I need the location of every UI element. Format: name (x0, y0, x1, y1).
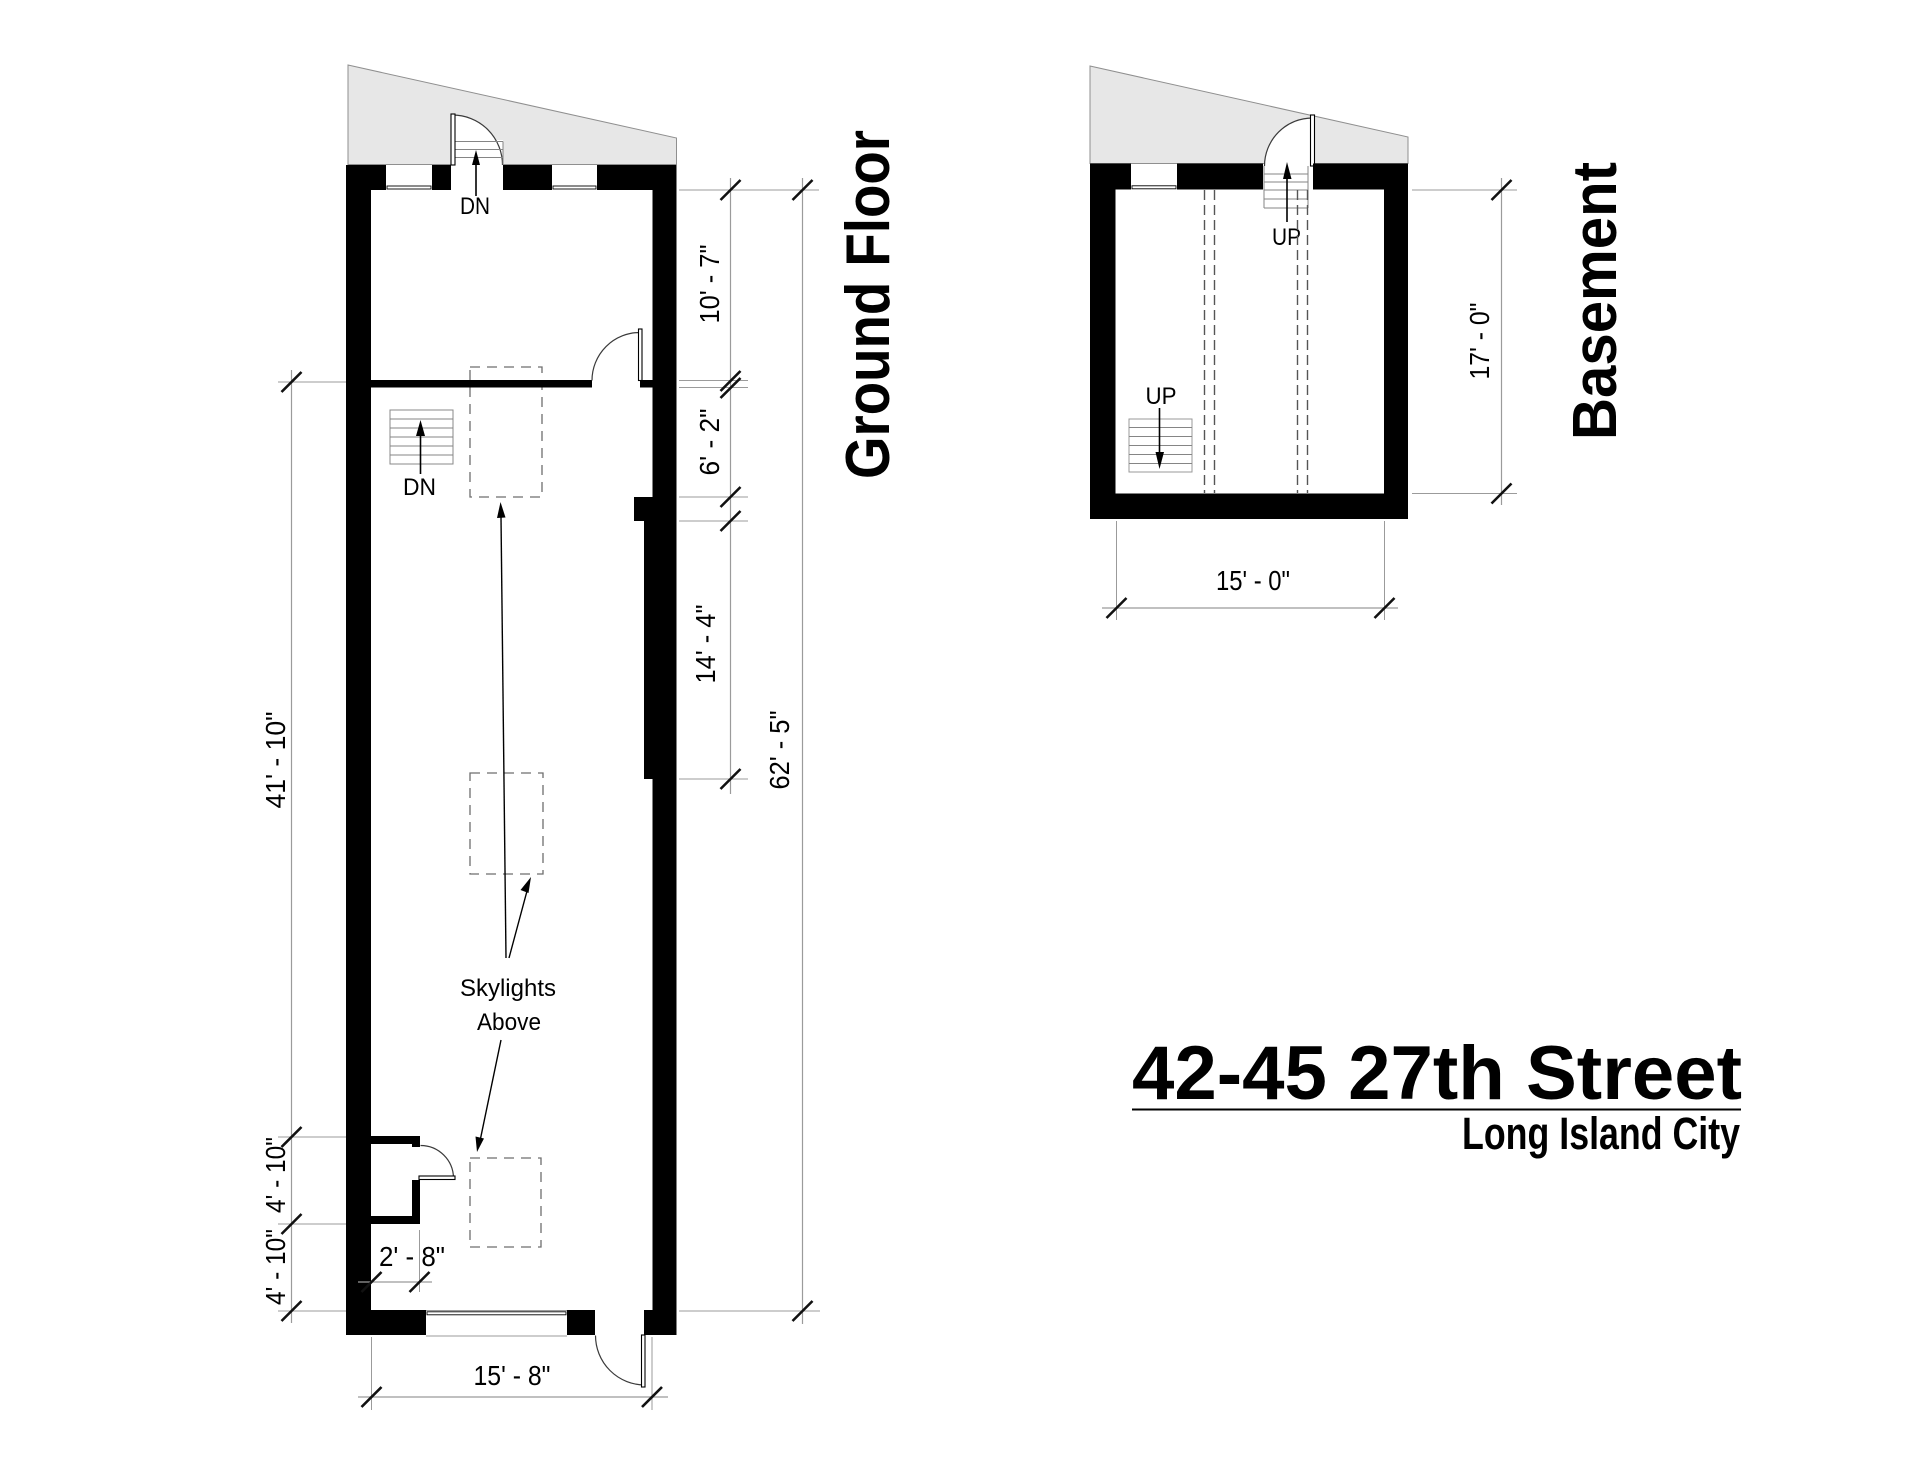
svg-text:14' - 4": 14' - 4" (690, 605, 721, 684)
svg-text:2' - 8": 2' - 8" (379, 1241, 445, 1272)
svg-text:DN: DN (460, 193, 490, 220)
svg-text:Long Island City: Long Island City (1462, 1108, 1740, 1159)
svg-text:17' - 0": 17' - 0" (1464, 303, 1495, 380)
svg-text:41' - 10": 41' - 10" (260, 712, 291, 809)
svg-text:42-45 27th Street: 42-45 27th Street (1132, 1031, 1742, 1116)
svg-text:15' - 0": 15' - 0" (1216, 565, 1290, 596)
svg-text:62' - 5": 62' - 5" (764, 711, 795, 790)
svg-text:UP: UP (1272, 224, 1301, 251)
svg-text:4' - 10": 4' - 10" (260, 1229, 291, 1305)
svg-text:10' - 7": 10' - 7" (694, 245, 725, 324)
svg-text:Basement: Basement (1561, 162, 1630, 440)
svg-text:Ground Floor: Ground Floor (834, 130, 903, 479)
svg-text:DN: DN (403, 474, 436, 501)
svg-text:4' - 10": 4' - 10" (260, 1137, 291, 1213)
svg-text:Skylights: Skylights (460, 975, 556, 1002)
svg-text:Above: Above (477, 1009, 541, 1036)
svg-text:15' - 8": 15' - 8" (474, 1360, 551, 1391)
svg-text:6' - 2": 6' - 2" (694, 409, 725, 476)
svg-text:UP: UP (1146, 383, 1177, 410)
